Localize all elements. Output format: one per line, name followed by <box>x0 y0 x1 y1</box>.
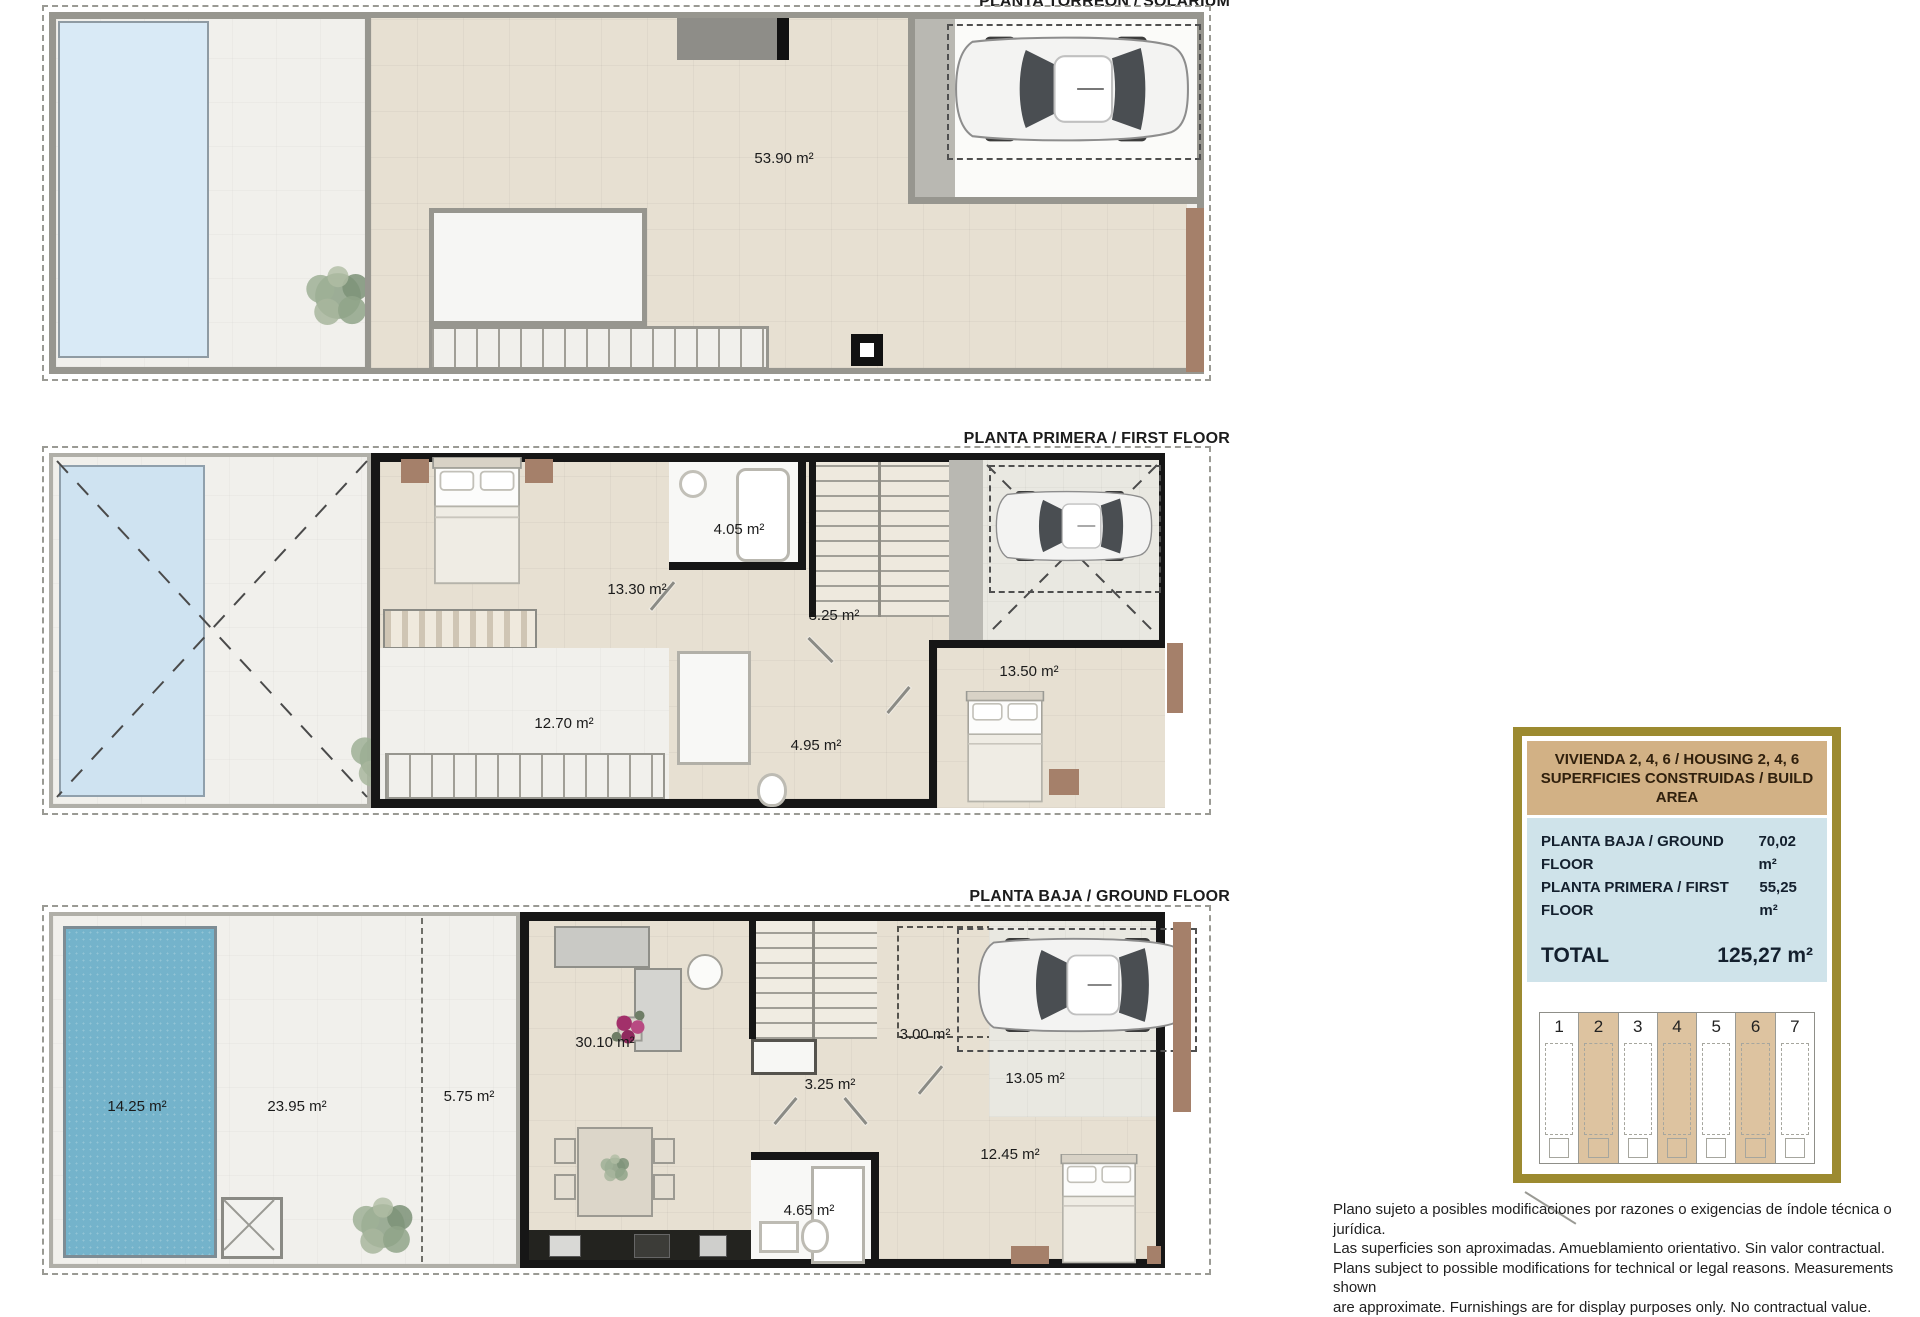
room-label-terrace: 23.95 m² <box>237 1098 357 1115</box>
chimney <box>851 334 883 366</box>
room-label-entry: 3.00 m² <box>865 1026 985 1043</box>
site-unit-3: 3 <box>1619 1013 1658 1163</box>
outdoor-shower <box>221 1197 283 1259</box>
toilet <box>801 1219 829 1253</box>
site-unit-5: 5 <box>1697 1013 1736 1163</box>
site-unit-number: 1 <box>1540 1017 1578 1037</box>
disclaimer-line: are approximate. Furnishings are for dis… <box>1333 1298 1908 1317</box>
panel-title-line2: SUPERFICIES CONSTRUIDAS / BUILD AREA <box>1531 769 1823 807</box>
kitchen-counter <box>529 1230 754 1260</box>
nightstand <box>1147 1246 1161 1264</box>
nightstand <box>1049 769 1079 795</box>
disclaimer-line: Las superficies son aproximadas. Amuebla… <box>1333 1239 1908 1259</box>
car-icon <box>995 471 1153 581</box>
bathroom-1 <box>669 462 806 570</box>
site-unit-number: 5 <box>1697 1017 1735 1037</box>
pergola-slats <box>383 609 537 649</box>
disclaimer: Plano sujeto a posibles modificaciones p… <box>1333 1200 1908 1317</box>
toilet <box>757 773 787 807</box>
area-row-first: PLANTA PRIMERA / FIRST FLOOR 55,25 m² <box>1541 876 1813 922</box>
site-unit-1: 1 <box>1540 1013 1579 1163</box>
plan-solarium: 53.90 m² <box>49 12 1204 374</box>
room-label-pool: 14.25 m² <box>77 1098 197 1115</box>
bathtub <box>736 468 790 562</box>
bed-icon <box>964 691 1046 803</box>
sofa <box>554 926 650 968</box>
carport-walkway <box>949 460 983 640</box>
total-row: TOTAL 125,27 m² <box>1541 944 1813 968</box>
plant-icon <box>337 1184 429 1268</box>
area-value: 55,25 m² <box>1759 876 1813 922</box>
site-unit-body <box>1781 1043 1809 1135</box>
dining-chair <box>653 1138 675 1164</box>
wood-deck-strip <box>1167 643 1183 713</box>
solarium-terrace-upper <box>371 18 908 204</box>
plan-title-ground-floor: PLANTA BAJA / GROUND FLOOR <box>900 888 1230 906</box>
site-unit-body <box>1624 1043 1652 1135</box>
sink <box>759 1221 799 1253</box>
room-label-bath: 4.65 m² <box>749 1202 869 1219</box>
site-plan: 1234567 <box>1539 1012 1815 1177</box>
area-row-ground: PLANTA BAJA / GROUND FLOOR 70,02 m² <box>1541 830 1813 876</box>
stairs-ground-floor <box>749 921 877 1039</box>
room-label-bedroom1: 13.30 m² <box>577 581 697 598</box>
site-unit-body <box>1702 1043 1730 1135</box>
site-unit-body <box>1741 1043 1769 1135</box>
floorplan-sheet: { "plans": { "solarium": { "title": "PLA… <box>0 0 1920 1280</box>
nightstand <box>1011 1246 1049 1264</box>
site-unit-number: 4 <box>1658 1017 1696 1037</box>
room-label-terrace: 12.70 m² <box>504 715 624 732</box>
room-label-bedroom2: 13.50 m² <box>969 663 1089 680</box>
site-unit-body <box>1545 1043 1573 1135</box>
site-plan-units: 1234567 <box>1539 1012 1815 1164</box>
site-unit-number: 7 <box>1776 1017 1814 1037</box>
room-label-hall: 3.25 m² <box>779 607 889 624</box>
nightstand <box>525 459 553 483</box>
site-unit-body <box>1663 1043 1691 1135</box>
wood-deck-strip <box>1173 922 1191 1112</box>
room-label-bath1: 4.05 m² <box>684 521 794 538</box>
void-cross-dashed <box>57 461 367 797</box>
stairs-terrace <box>385 753 665 799</box>
car-icon <box>954 32 1190 146</box>
room-label-parking: 13.05 m² <box>975 1070 1095 1087</box>
room-label-porch: 5.75 m² <box>414 1088 524 1105</box>
storage-box <box>677 18 789 60</box>
ground-pool <box>63 926 217 1258</box>
panel-title-line1: VIVIENDA 2, 4, 6 / HOUSING 2, 4, 6 <box>1531 750 1823 769</box>
nightstand <box>401 459 429 483</box>
plan-first-floor: 4.05 m² 13.30 m² 3.25 m² 13.50 m² 12.70 … <box>49 453 1204 808</box>
total-value: 125,27 m² <box>1717 944 1813 968</box>
site-unit-7: 7 <box>1776 1013 1814 1163</box>
room-label-bath2: 4.95 m² <box>761 737 871 754</box>
disclaimer-line: Plano sujeto a posibles modificaciones p… <box>1333 1200 1908 1239</box>
area-value: 70,02 m² <box>1758 830 1813 876</box>
room-label-living: 30.10 m² <box>545 1034 665 1051</box>
car-icon <box>977 934 1189 1036</box>
plan-ground-floor: 14.25 m² 23.95 m² 5.75 m² 30.10 m² 3.25 … <box>49 912 1204 1268</box>
shower <box>677 651 751 765</box>
stairs-first-floor <box>809 462 949 617</box>
sink <box>679 470 707 498</box>
site-unit-number: 3 <box>1619 1017 1657 1037</box>
stairs-solarium <box>429 326 769 370</box>
stairwell-opening <box>429 208 647 326</box>
site-unit-2: 2 <box>1579 1013 1618 1163</box>
panel-header: VIVIENDA 2, 4, 6 / HOUSING 2, 4, 6 SUPER… <box>1527 741 1827 815</box>
dining-chair <box>554 1174 576 1200</box>
total-label: TOTAL <box>1541 944 1609 968</box>
understairs-closet <box>751 1039 817 1075</box>
dining-chair <box>653 1174 675 1200</box>
dining-chair <box>554 1138 576 1164</box>
area-label: PLANTA PRIMERA / FIRST FLOOR <box>1541 876 1759 922</box>
bed-icon <box>431 457 523 585</box>
solarium-pool <box>58 21 209 358</box>
site-unit-body <box>1584 1043 1612 1135</box>
site-unit-4: 4 <box>1658 1013 1697 1163</box>
site-unit-6: 6 <box>1736 1013 1775 1163</box>
side-table-round <box>687 954 723 990</box>
bed-icon <box>1054 1154 1144 1264</box>
table-plant-icon <box>595 1148 635 1188</box>
disclaimer-line: Plans subject to possible modifications … <box>1333 1259 1908 1298</box>
room-label-bedroom: 12.45 m² <box>950 1146 1070 1163</box>
room-label-hall: 3.25 m² <box>770 1076 890 1093</box>
room-label-solarium: 53.90 m² <box>704 150 864 167</box>
site-unit-number: 6 <box>1736 1017 1774 1037</box>
wood-deck-strip <box>1186 208 1204 372</box>
panel-areas: PLANTA BAJA / GROUND FLOOR 70,02 m² PLAN… <box>1527 818 1827 982</box>
site-unit-number: 2 <box>1579 1017 1617 1037</box>
area-label: PLANTA BAJA / GROUND FLOOR <box>1541 830 1758 876</box>
build-area-panel: VIVIENDA 2, 4, 6 / HOUSING 2, 4, 6 SUPER… <box>1513 727 1841 1183</box>
